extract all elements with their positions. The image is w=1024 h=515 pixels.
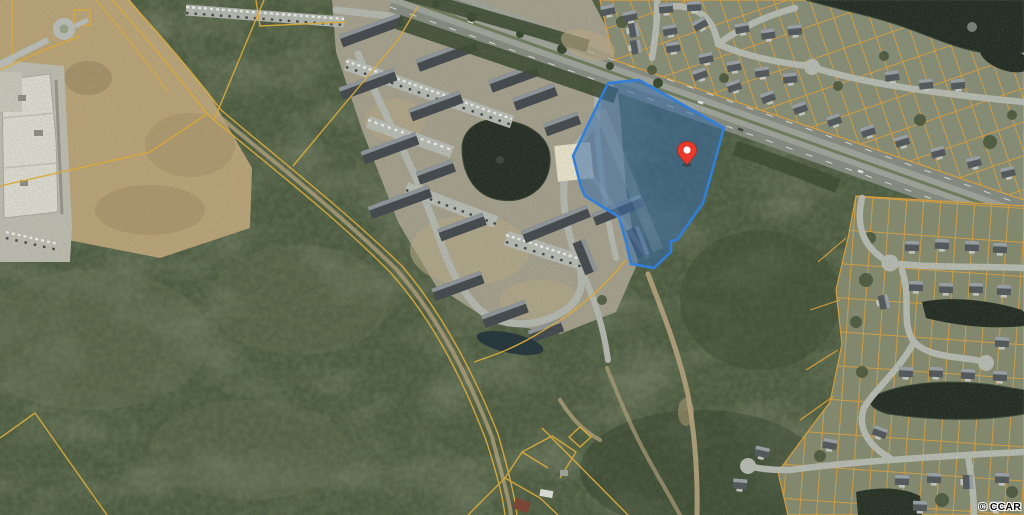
texture-overlay <box>0 0 1024 515</box>
listing-map-image: © CCAR <box>0 0 1024 515</box>
ccar-watermark: © CCAR <box>979 501 1021 513</box>
